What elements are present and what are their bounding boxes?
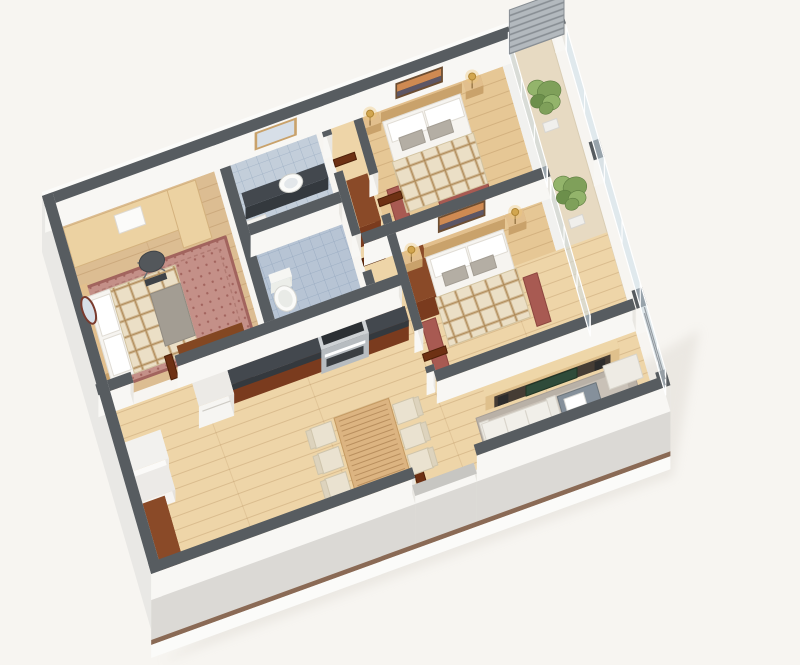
window-mullion [665, 367, 666, 395]
floorplan-render [0, 0, 800, 665]
window-mullion [534, 121, 535, 145]
window-mullion [566, 25, 567, 53]
window-mullion [622, 218, 623, 246]
apartment-3d-scene [0, 0, 800, 665]
window-mullion [584, 88, 585, 116]
window-mullion [604, 157, 605, 185]
window-mullion [546, 164, 547, 188]
window-mullion [564, 223, 565, 247]
window-mullion [577, 268, 578, 292]
window-mullion [521, 76, 522, 100]
window-mullion [551, 178, 552, 202]
window-mullion [589, 312, 590, 336]
window-mullion [640, 281, 641, 309]
